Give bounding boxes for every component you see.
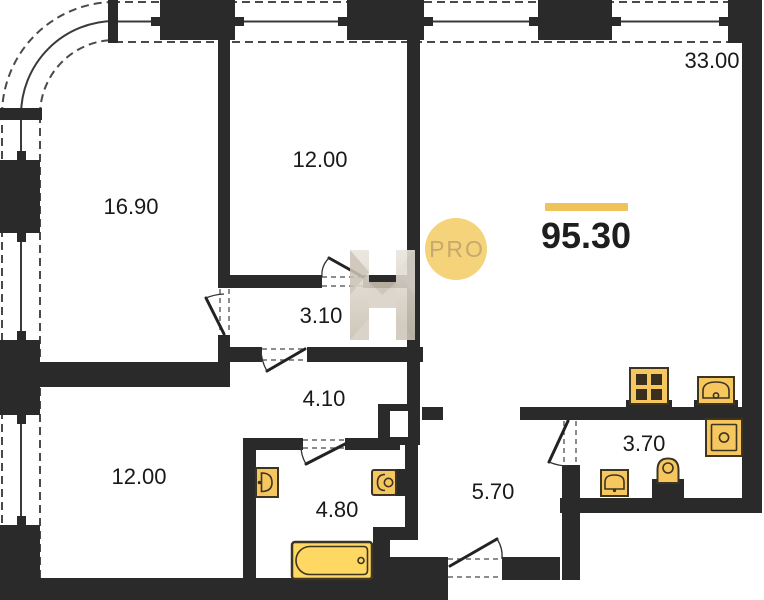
wall-right-exterior xyxy=(742,43,762,513)
wall-16-90-bottom xyxy=(40,362,230,387)
wall-bottom-exterior xyxy=(0,578,448,600)
watermark-logo xyxy=(350,250,415,340)
label-room-12-00-top: 12.00 xyxy=(292,147,347,172)
door-entrance xyxy=(448,539,502,577)
walls xyxy=(0,40,762,600)
wall-wc-left xyxy=(562,465,580,580)
room-labels: 16.90 12.00 33.00 3.10 4.10 12.00 4.80 5… xyxy=(103,48,739,522)
label-corridor-3-10: 3.10 xyxy=(300,303,343,328)
label-hall-5-70: 5.70 xyxy=(472,479,515,504)
column xyxy=(160,0,235,40)
stove xyxy=(626,368,672,408)
wall-jog-horizontal xyxy=(373,527,418,540)
wall-kitchen-stub xyxy=(422,407,443,420)
wall-hall-bottom-a xyxy=(390,557,448,580)
floor-plan-canvas: PRO 95.30 16.90 12.00 33.00 3.10 4.10 12… xyxy=(0,0,764,600)
bathroom-sink xyxy=(256,468,278,497)
label-living-33-00: 33.00 xyxy=(684,48,739,73)
pro-badge-label: PRO xyxy=(429,236,485,262)
column xyxy=(0,160,40,233)
window-corner-arc xyxy=(21,21,115,115)
total-area-accent-bar xyxy=(545,203,628,211)
door-corridor xyxy=(261,349,307,371)
label-corridor-4-10: 4.10 xyxy=(303,386,346,411)
label-room-16-90: 16.90 xyxy=(103,194,158,219)
wall-living-left xyxy=(407,40,420,412)
floor-plan-svg: PRO 95.30 16.90 12.00 33.00 3.10 4.10 12… xyxy=(0,0,764,600)
shaft-void xyxy=(390,411,408,437)
column xyxy=(538,0,612,40)
kitchen-sink xyxy=(694,377,738,408)
wall-corridor-top-a xyxy=(218,275,322,288)
wall-hall-bottom-b xyxy=(502,557,560,580)
wc-sink xyxy=(601,470,628,496)
wall-wc-bottom xyxy=(560,498,762,513)
wall-corridor-bottom-a xyxy=(218,347,262,362)
total-area: 95.30 xyxy=(541,203,631,256)
column xyxy=(0,340,40,415)
wall-corridor-bottom-b xyxy=(307,347,423,362)
total-area-value: 95.30 xyxy=(541,215,631,256)
bathroom-toilet xyxy=(372,470,396,495)
column xyxy=(347,0,424,40)
door-room-16-90 xyxy=(206,289,229,334)
column xyxy=(728,0,762,43)
door-wc xyxy=(549,421,576,466)
wall-bathroom-top-b xyxy=(345,438,400,450)
wc-toilet xyxy=(652,459,684,499)
door-bathroom xyxy=(301,440,345,464)
wall-bathroom-left xyxy=(243,438,256,600)
label-room-12-00-bottom: 12.00 xyxy=(111,464,166,489)
column xyxy=(108,0,118,43)
washing-machine xyxy=(706,419,742,456)
column xyxy=(0,108,42,120)
wall-16-90-right xyxy=(218,40,230,288)
label-bathroom-4-80: 4.80 xyxy=(316,497,359,522)
bathtub xyxy=(292,542,372,579)
pro-badge: PRO xyxy=(425,218,487,280)
label-wc-3-70: 3.70 xyxy=(623,431,666,456)
